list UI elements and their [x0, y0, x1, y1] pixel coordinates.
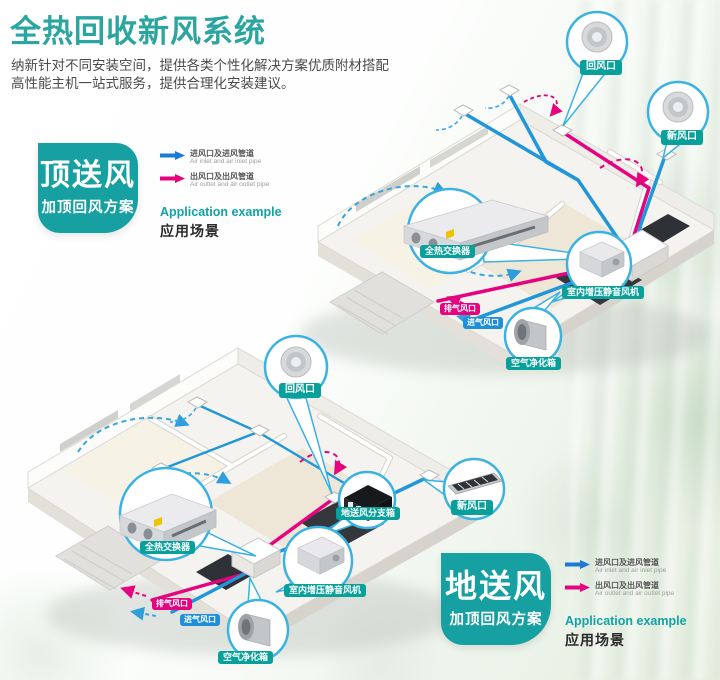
- label-air-purifier: 空气净化箱: [218, 651, 273, 664]
- legend-inlet-text: 进风口及进风管道 Air inlet and air inlet pipe: [595, 558, 666, 575]
- legend-outlet-text: 出风口及出风管道 Air outlet and air outlet pipe: [190, 172, 269, 189]
- scheme-badge-top-title: 顶送风: [38, 159, 138, 192]
- header: 全热回收新风系统 纳新针对不同安装空间，提供各类个性化解决方案优质附材搭配 高性…: [10, 6, 389, 93]
- bottom-floorplan: [28, 336, 504, 660]
- scheme-badge-top: 顶送风 加顶回风方案: [38, 143, 138, 233]
- label-heat-exchanger: 全热交换器: [140, 541, 195, 554]
- page: 全热回收新风系统 纳新针对不同安装空间，提供各类个性化解决方案优质附材搭配 高性…: [0, 0, 720, 680]
- label-intake-vent: 进气风口: [463, 317, 503, 329]
- application-example-cn: 应用场景: [160, 221, 282, 241]
- legend-top: 进风口及进风管道 Air inlet and air inlet pipe 出风…: [160, 149, 282, 241]
- label-return-air-vent: 回风口: [580, 60, 622, 75]
- label-intake-vent: 进气风口: [180, 614, 220, 626]
- label-fresh-air-vent: 新风口: [451, 500, 493, 515]
- legend-inlet-text: 进风口及进风管道 Air inlet and air inlet pipe: [190, 149, 261, 166]
- label-return-air-vent: 回风口: [279, 383, 321, 398]
- label-booster-fan: 室内增压静音风机: [284, 584, 366, 597]
- legend-bottom: 进风口及进风管道 Air inlet and air inlet pipe 出风…: [565, 558, 687, 650]
- application-example-en: Application example: [160, 205, 282, 219]
- scheme-badge-bottom-title: 地送风: [441, 569, 551, 604]
- application-example-cn: 应用场景: [565, 630, 687, 650]
- subtitle-line-2: 高性能主机一站式服务，提供合理化安装建议。: [11, 75, 389, 93]
- outlet-arrow-icon: [565, 583, 590, 592]
- label-exhaust-vent: 排气风口: [152, 598, 192, 610]
- legend-inlet-row: 进风口及进风管道 Air inlet and air inlet pipe: [160, 149, 282, 166]
- legend-outlet-text: 出风口及出风管道 Air outlet and air outlet pipe: [595, 581, 674, 598]
- inlet-arrow-icon: [160, 151, 185, 160]
- round-diffuser-icon: [663, 92, 693, 122]
- scheme-badge-top-subtitle: 加顶回风方案: [38, 196, 138, 217]
- application-example-en: Application example: [565, 614, 687, 628]
- label-air-purifier: 空气净化箱: [506, 357, 561, 370]
- round-diffuser-icon: [281, 347, 311, 377]
- page-subtitle: 纳新针对不同安装空间，提供各类个性化解决方案优质附材搭配 高性能主机一站式服务，…: [11, 57, 389, 93]
- inlet-arrow-icon: [565, 560, 590, 569]
- subtitle-line-1: 纳新针对不同安装空间，提供各类个性化解决方案优质附材搭配: [11, 57, 389, 75]
- legend-outlet-row: 出风口及出风管道 Air outlet and air outlet pipe: [565, 581, 687, 598]
- outlet-arrow-icon: [160, 174, 185, 183]
- label-fresh-air-vent: 新风口: [661, 130, 703, 145]
- label-exhaust-vent: 排气风口: [440, 303, 480, 315]
- label-heat-exchanger: 全热交换器: [420, 245, 475, 258]
- label-floor-supply-branch-box: 地送风分支箱: [336, 507, 400, 520]
- label-booster-fan: 室内增压静音风机: [562, 286, 644, 299]
- legend-outlet-row: 出风口及出风管道 Air outlet and air outlet pipe: [160, 172, 282, 189]
- scheme-badge-bottom-subtitle: 加顶回风方案: [441, 608, 551, 629]
- legend-inlet-row: 进风口及进风管道 Air inlet and air inlet pipe: [565, 558, 687, 575]
- scheme-badge-bottom: 地送风 加顶回风方案: [441, 553, 551, 645]
- page-title: 全热回收新风系统: [10, 6, 389, 51]
- round-diffuser-icon: [582, 22, 612, 52]
